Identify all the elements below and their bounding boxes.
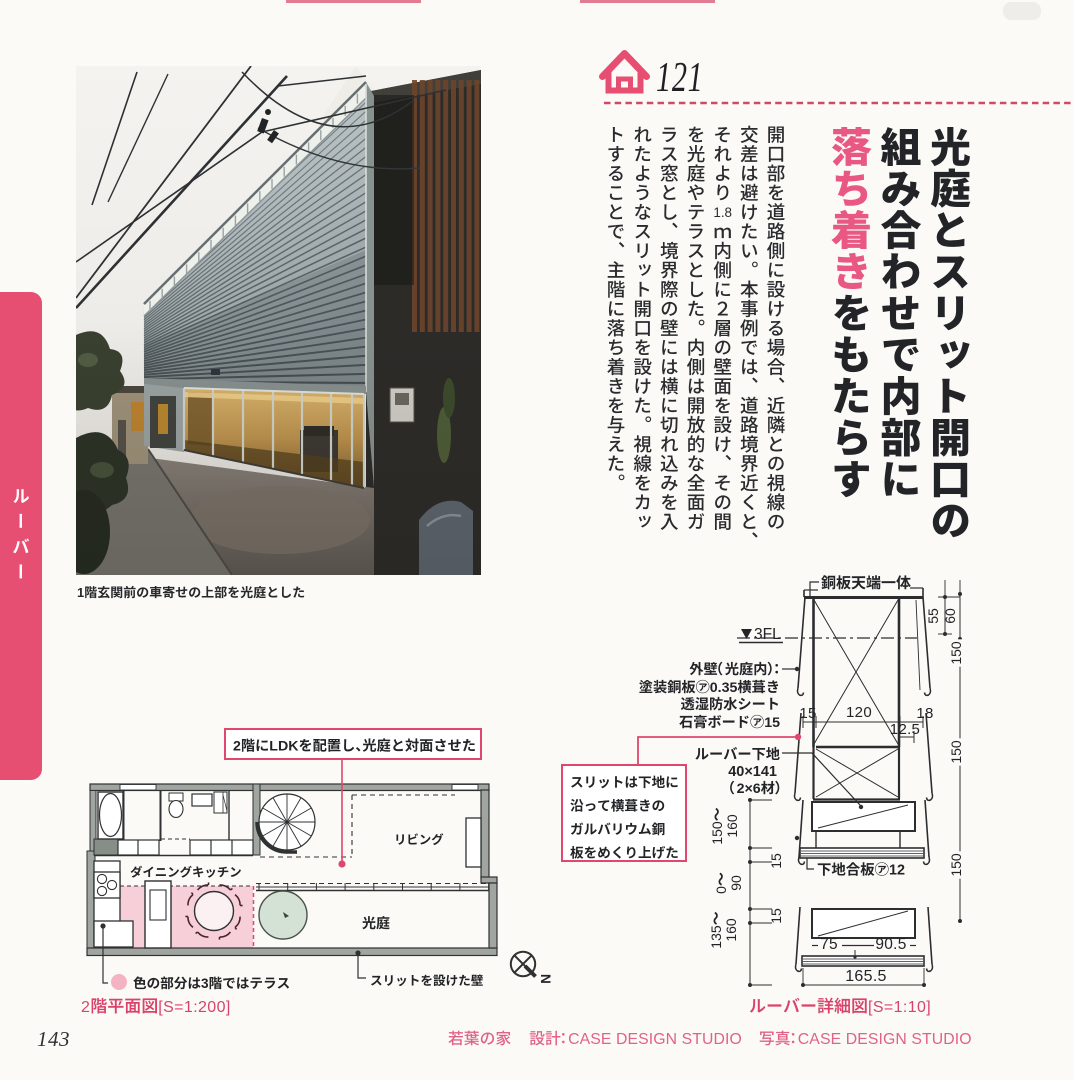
svg-text:90: 90 bbox=[728, 875, 744, 891]
svg-text:55: 55 bbox=[925, 608, 941, 624]
svg-text:15: 15 bbox=[799, 705, 816, 722]
svg-text:160: 160 bbox=[723, 918, 739, 942]
svg-text:135: 135 bbox=[708, 925, 724, 949]
svg-text:150: 150 bbox=[948, 740, 964, 764]
svg-text:60: 60 bbox=[942, 608, 958, 624]
svg-text:1: 1 bbox=[77, 585, 84, 600]
svg-text:12.5: 12.5 bbox=[890, 721, 920, 738]
svg-text:120: 120 bbox=[846, 704, 872, 721]
svg-text:CASE DESIGN STUDIO: CASE DESIGN STUDIO bbox=[568, 1031, 742, 1048]
svg-text:0: 0 bbox=[713, 886, 729, 894]
svg-text:15: 15 bbox=[764, 715, 780, 731]
svg-text:150: 150 bbox=[709, 821, 725, 845]
svg-text:LDK: LDK bbox=[269, 739, 299, 755]
svg-text:90.5: 90.5 bbox=[875, 936, 906, 953]
svg-text:143: 143 bbox=[37, 1027, 70, 1051]
svg-text:121: 121 bbox=[656, 53, 704, 100]
svg-text:[S=1:10]: [S=1:10] bbox=[868, 999, 931, 1016]
svg-text:2: 2 bbox=[81, 999, 90, 1016]
svg-text:0.35: 0.35 bbox=[710, 680, 738, 696]
svg-text:N: N bbox=[538, 974, 553, 984]
svg-text:3FL: 3FL bbox=[754, 626, 781, 643]
svg-text:2: 2 bbox=[233, 739, 241, 755]
svg-text:[S=1:200]: [S=1:200] bbox=[158, 999, 230, 1016]
svg-text:165.5: 165.5 bbox=[845, 968, 887, 985]
svg-text:12: 12 bbox=[889, 863, 905, 879]
svg-text:CASE DESIGN STUDIO: CASE DESIGN STUDIO bbox=[798, 1031, 972, 1048]
svg-text:3: 3 bbox=[201, 976, 209, 991]
svg-text:1.8: 1.8 bbox=[713, 205, 732, 220]
svg-text:15: 15 bbox=[768, 908, 784, 924]
svg-text:150: 150 bbox=[948, 853, 964, 877]
svg-text:75: 75 bbox=[820, 936, 838, 953]
svg-text:18: 18 bbox=[916, 705, 933, 722]
svg-text:160: 160 bbox=[724, 814, 740, 838]
svg-text:15: 15 bbox=[768, 853, 784, 869]
svg-text:2×6: 2×6 bbox=[737, 781, 761, 797]
svg-text:40×141: 40×141 bbox=[728, 764, 777, 780]
svg-text:150: 150 bbox=[948, 641, 964, 665]
